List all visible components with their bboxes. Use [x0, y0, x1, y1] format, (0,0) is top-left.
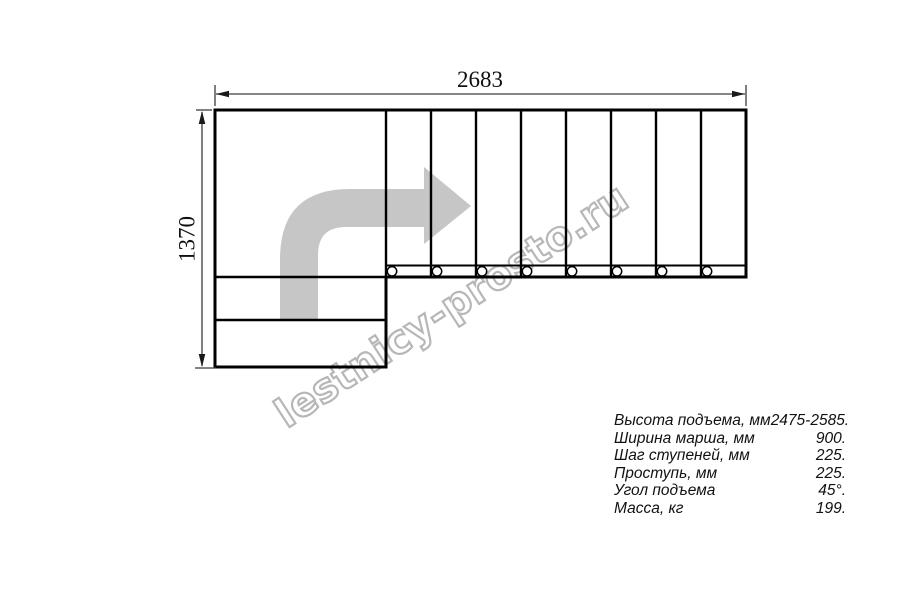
spec-value: 199. — [816, 500, 846, 518]
spec-value: 225. — [816, 447, 846, 465]
dimension-arrowhead-top — [199, 111, 206, 124]
spec-label: Высота подъема, мм — [614, 412, 771, 430]
top-dimension-label: 2683 — [457, 67, 503, 92]
dimension-arrowhead-left — [216, 91, 229, 98]
left-dimension: 1370 — [175, 110, 217, 368]
spec-row-flight-width: Ширина марша, мм 900. — [614, 430, 846, 448]
dimension-arrowhead-right — [732, 91, 745, 98]
spec-row-step-pitch: Шаг ступеней, мм 225. — [614, 447, 846, 465]
spec-label: Шаг ступеней, мм — [614, 447, 750, 465]
spec-label: Ширина марша, мм — [614, 430, 755, 448]
spec-row-rise-height: Высота подъема, мм 2475-2585. — [614, 412, 846, 430]
spec-label: Угол подъема — [614, 482, 715, 500]
spec-value: 45°. — [818, 482, 846, 500]
spec-row-mass: Масса, кг 199. — [614, 500, 846, 518]
spec-label: Проступь, мм — [614, 465, 717, 483]
spec-value: 225. — [816, 465, 846, 483]
top-dimension: 2683 — [215, 67, 746, 106]
spec-label: Масса, кг — [614, 500, 683, 518]
stair-plan-page: lestnicy-prosto.ru — [0, 0, 900, 600]
spec-row-rise-angle: Угол подъема 45°. — [614, 482, 846, 500]
spec-row-tread-depth: Проступь, мм 225. — [614, 465, 846, 483]
tread-lines — [431, 110, 701, 277]
spec-value: 900. — [816, 430, 846, 448]
spec-value: 2475-2585. — [771, 412, 849, 430]
dimension-arrowhead-bottom — [199, 354, 206, 367]
spec-table: Высота подъема, мм 2475-2585. Ширина мар… — [614, 412, 846, 518]
left-dimension-label: 1370 — [175, 216, 200, 262]
